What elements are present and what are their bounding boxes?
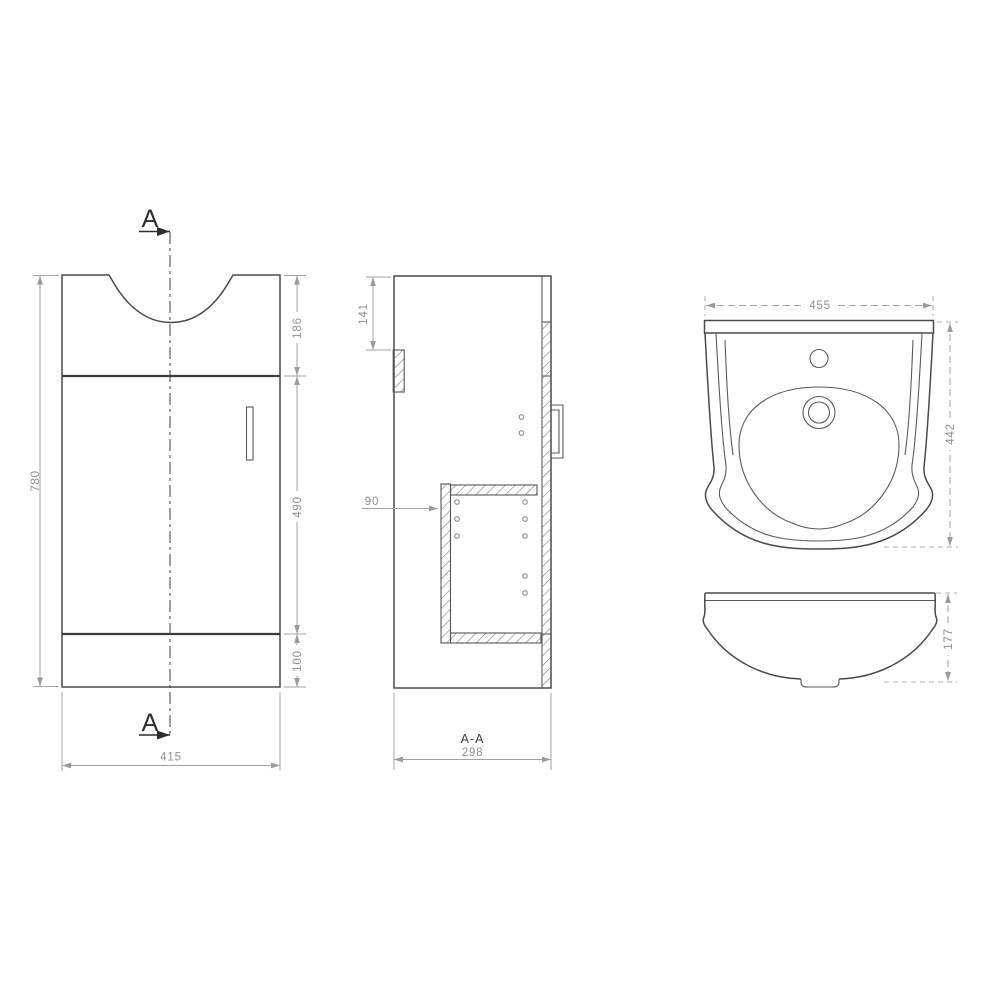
- section-marker-label-top: A: [142, 205, 159, 233]
- dim-label-90: 90: [365, 496, 379, 508]
- rim-detail-arc-right: [905, 340, 913, 455]
- rim-detail-arc-left: [725, 340, 733, 455]
- screw-hole-dot: [523, 534, 528, 539]
- screw-hole-dot: [523, 517, 528, 522]
- dim-label-442: 442: [945, 423, 957, 445]
- section-cut-markers: A A: [139, 205, 170, 737]
- dim-label-298: 298: [462, 747, 484, 759]
- dim-label-100: 100: [292, 650, 304, 672]
- screw-hole-dot: [455, 500, 460, 505]
- basin-top-view: 455 442: [705, 296, 959, 549]
- handle-profile-outer: [551, 405, 563, 458]
- dim-label-141: 141: [358, 303, 370, 325]
- back-rail-section: [393, 350, 404, 392]
- screw-hole-dot: [523, 591, 528, 596]
- section-view: 141 90 A-A 298: [358, 276, 563, 770]
- shelf-bottom-panel-section: [451, 633, 542, 643]
- waste-hole-inner: [809, 402, 830, 423]
- dim-label-177: 177: [943, 628, 955, 650]
- screw-hole-dot: [519, 415, 524, 420]
- waste-hole-outer: [803, 397, 835, 429]
- shelf-front-panel-section: [441, 484, 451, 643]
- screw-hole-dot: [523, 574, 528, 579]
- dim-label-415: 415: [160, 752, 182, 764]
- handle-profile-inner: [551, 410, 559, 453]
- screw-hole-dot: [523, 500, 528, 505]
- basin-front-view-dimensions: 177: [884, 593, 957, 682]
- hatch-door-section: [543, 377, 551, 634]
- dim-label-780: 780: [30, 470, 42, 492]
- dim-label-186: 186: [292, 317, 304, 339]
- section-view-dimensions: 141 90 A-A 298: [358, 277, 551, 770]
- basin-profile-right: [839, 593, 937, 679]
- screw-hole-dot: [455, 534, 460, 539]
- basin-bowl-outline: [739, 387, 899, 529]
- shelf-top-panel-section: [451, 485, 538, 495]
- front-view: A A 780 186 490: [30, 205, 306, 771]
- drawing-sheet: A A 780 186 490: [0, 0, 1000, 1000]
- dim-label-455: 455: [809, 300, 831, 312]
- basin-back-ledge: [705, 321, 934, 334]
- basin-inner-rim-line: [716, 333, 922, 541]
- screw-hole-dot: [455, 517, 460, 522]
- screw-hole-dot: [519, 431, 524, 436]
- front-view-dimensions: 780 186 490 100 415: [30, 276, 306, 772]
- section-outline: [394, 276, 551, 688]
- tap-hole: [810, 350, 828, 368]
- cabinet-outline: [62, 275, 280, 687]
- hatch-top-rail-section: [543, 323, 551, 376]
- waste-boss: [801, 679, 839, 687]
- hatch-plinth-section: [543, 635, 551, 687]
- door-handle: [247, 407, 254, 460]
- section-view-label: A-A: [461, 732, 485, 746]
- dim-label-490: 490: [292, 496, 304, 518]
- basin-profile-left: [703, 593, 801, 679]
- technical-drawing-canvas: A A 780 186 490: [0, 0, 1000, 1000]
- section-marker-label-bottom: A: [142, 709, 159, 737]
- basin-front-view: 177: [703, 593, 957, 687]
